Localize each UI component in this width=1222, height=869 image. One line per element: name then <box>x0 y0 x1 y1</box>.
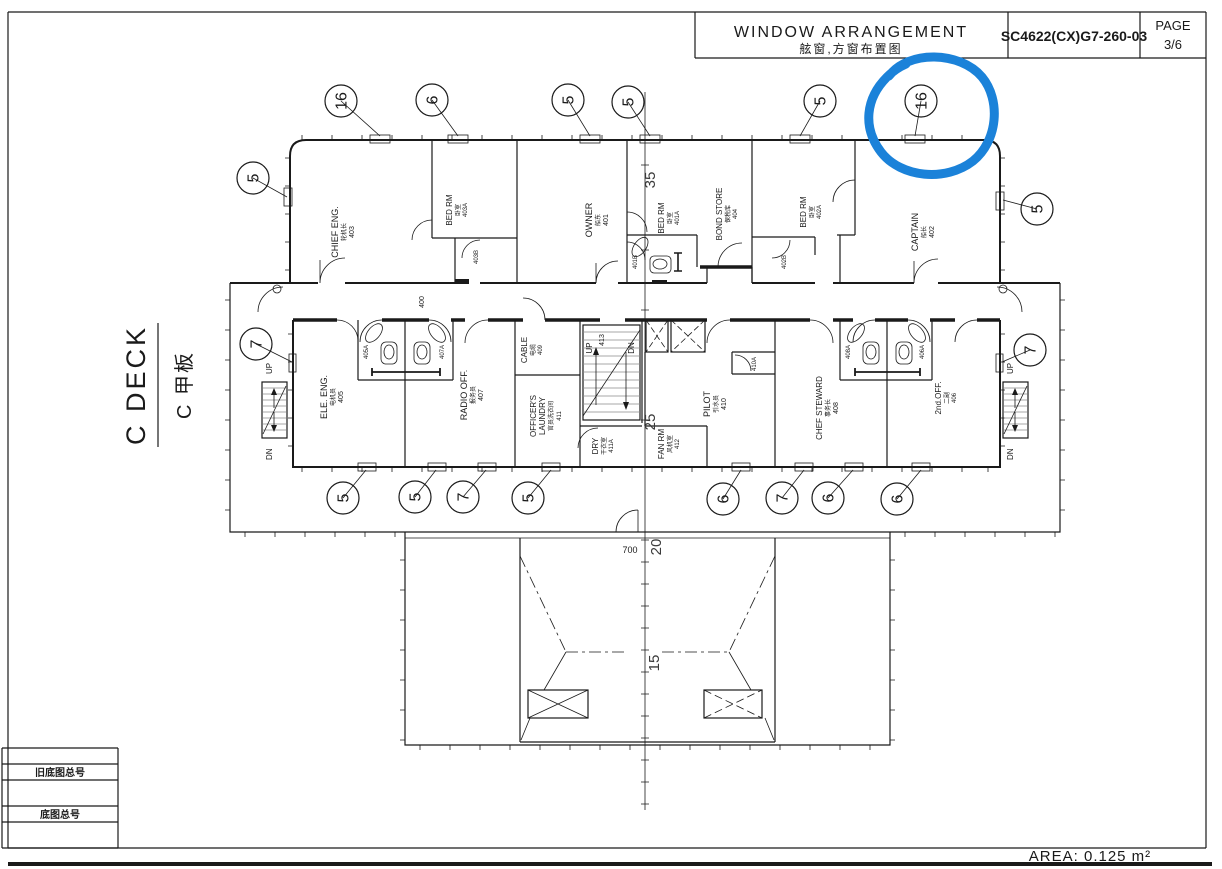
room-number: 406 <box>952 392 958 403</box>
room-number: 410A <box>752 357 758 371</box>
room-label-zh: 卧室 <box>454 204 462 216</box>
drawing-number: SC4622(CX)G7-260-03 <box>1001 28 1148 44</box>
title-block: WINDOW ARRANGEMENT 舷窗,方窗布置图 SC4622(CX)G7… <box>695 12 1206 58</box>
room-number: 402B <box>782 255 788 269</box>
dn-label: DN <box>1006 448 1015 460</box>
room-bond-store: BOND STORE 保税库 404 <box>715 188 739 241</box>
arrow-up-head <box>1012 388 1018 395</box>
balloon-number: 5 <box>521 493 538 502</box>
room-ele-eng: ELE. ENG. 电机员 405 <box>319 375 345 419</box>
rail-icon <box>372 368 440 376</box>
page-number: 3/6 <box>1164 37 1182 52</box>
balloon-number: 5 <box>408 492 425 501</box>
balloon-number: 7 <box>249 339 266 348</box>
stamp-row2-label: 底图总号 <box>40 808 80 821</box>
room-wc-403b: 403B <box>474 250 480 264</box>
room-wc-410a: 410A <box>752 357 758 371</box>
wing-door-arcs <box>258 287 1022 312</box>
room-label-zh: 官员洗衣间 <box>547 401 555 431</box>
room-bed-401a: BED RM 卧室 401A <box>657 202 681 233</box>
wing-stair-right: UP DN <box>1003 363 1028 460</box>
balloon-6-bottom-c: 6 <box>881 470 921 515</box>
deck-title-zh: C 甲板 <box>173 351 196 419</box>
area-note: AREA: 0.125 m² <box>1029 848 1151 865</box>
up-label: UP <box>265 363 274 374</box>
upper-partitions <box>432 140 855 283</box>
room-label: BED RM <box>657 202 666 233</box>
balloon-number: 7 <box>775 493 792 502</box>
room-label-zh: 船长 <box>920 226 928 238</box>
rail-icon <box>674 253 682 271</box>
stair-no-label: 413 <box>599 334 606 346</box>
room-label-zh: 风机室 <box>666 435 674 453</box>
balloon-16-top-right-highlighted: 16 <box>905 85 937 136</box>
balloon-5-bottom-c: 5 <box>512 470 551 514</box>
balloon-16-top-left: 16 <box>325 85 380 136</box>
balloon-number: 16 <box>334 92 351 110</box>
room-number: 411 <box>557 411 563 421</box>
door-knob-right <box>999 285 1007 293</box>
room-number: 401B <box>633 255 639 269</box>
room-label: CHIEF ENG. <box>330 206 340 258</box>
stamp-table: 旧底图总号 底图总号 <box>2 748 118 848</box>
balloon-6-bottom-a: 6 <box>707 470 741 515</box>
balloon-number: 5 <box>561 95 578 104</box>
room-captain: CAPTAIN 船长 402 <box>910 213 936 251</box>
room-wc-401b: 401B <box>633 255 639 269</box>
balloon-number: 7 <box>1023 345 1040 354</box>
dn-label: DN <box>627 342 636 354</box>
sink-icon <box>425 321 448 346</box>
room-number: 401 <box>603 214 610 226</box>
room-number: 410 <box>721 398 728 410</box>
balloon-7-bottom-b: 7 <box>766 470 804 514</box>
room-wc-402b: 402B <box>782 255 788 269</box>
sink-icon <box>362 321 385 346</box>
trunk-x <box>646 320 668 352</box>
balloon-number: 5 <box>1030 204 1047 213</box>
room-label: OFFICER'S <box>529 395 538 437</box>
lower-wall-ticks <box>288 334 1005 472</box>
stair-dn-label: DN <box>627 342 636 354</box>
room-number: 412 <box>675 438 681 449</box>
room-label: BOND STORE <box>715 188 724 241</box>
room-number: 404 <box>733 208 739 219</box>
vent-box-left-x <box>528 690 588 718</box>
room-dry: DRY 干衣室 411A <box>591 437 615 455</box>
door-knob-left <box>273 285 281 293</box>
vent-box-right-x <box>704 690 762 718</box>
room-number: 405 <box>338 391 345 403</box>
room-label-zh: 电缆 <box>529 344 537 356</box>
room-label: CHEF STEWARD <box>815 376 824 440</box>
room-label: DRY <box>591 437 600 454</box>
drawing-title-en: WINDOW ARRANGEMENT <box>734 24 968 41</box>
room-label: CABLE <box>520 337 529 363</box>
room-second-off: 2nd.OFF. 二副 406 <box>934 382 958 415</box>
trunk-casings <box>646 320 705 352</box>
room-label-zh: 保税库 <box>724 205 732 223</box>
room-number: 407A <box>440 345 446 359</box>
room-bed-402a: BED RM 卧室 402A <box>799 196 823 227</box>
room-label-zh: 卧室 <box>666 212 674 224</box>
balloon-number: 6 <box>890 494 907 503</box>
room-officers-laundry: OFFICER'S LAUNDRY 官员洗衣间 411 <box>529 395 563 437</box>
balloon-5-bottom-b: 5 <box>399 470 436 513</box>
room-radio-off: RADIO OFF. 报务员 407 <box>459 370 485 421</box>
page-label: PAGE <box>1155 18 1190 33</box>
corridor-number-label: 400 <box>419 296 426 308</box>
balloon-number: 6 <box>821 493 838 502</box>
room-cable: CABLE 电缆 409 <box>520 337 544 363</box>
room-wc-406a: 406A <box>920 345 926 359</box>
room-label-zh: 轮机长 <box>340 223 348 241</box>
balloon-5-bottom-a: 5 <box>327 470 366 514</box>
room-label: FAN RM <box>657 429 666 460</box>
room-owner: OWNER 船东 401 <box>584 202 610 237</box>
upper-door-arcs <box>320 180 938 283</box>
room-number: 413 <box>599 334 606 346</box>
room-number: 407 <box>478 389 485 401</box>
lower-cabin-block: ELE. ENG. 电机员 405 405A 407A RADIO OFF. 报… <box>288 298 1005 472</box>
room-label: BED RM <box>799 196 808 227</box>
sink-icon <box>905 321 928 346</box>
toilet-bowl-icon <box>384 345 394 359</box>
up-label: UP <box>585 342 594 353</box>
up-label: UP <box>1006 363 1015 374</box>
toilet-bowl-icon <box>866 345 876 359</box>
highlight-annotation-circle <box>869 57 995 174</box>
dn-label: DN <box>265 448 274 460</box>
balloon-number: 7 <box>456 492 473 501</box>
room-label: RADIO OFF. <box>459 370 469 421</box>
hull-outline <box>405 532 890 745</box>
dim-label: 25 <box>642 414 659 431</box>
room-label: BED RM <box>445 194 454 225</box>
stair-arrow-dn-head <box>623 402 629 410</box>
balloon-number: 5 <box>336 493 353 502</box>
casing-door-arc <box>616 510 638 532</box>
balloon-5-left: 5 <box>237 162 287 197</box>
balloon-5-right: 5 <box>1003 193 1053 225</box>
bond-store-recess-sides <box>707 267 752 283</box>
room-number: 405A <box>364 345 370 359</box>
room-number: 401A <box>675 211 681 225</box>
toilet-bowl-icon <box>653 259 667 269</box>
deck-title: C DECK C 甲板 <box>121 323 196 447</box>
arrow-dn-head <box>1012 425 1018 432</box>
room-label-zh: 二副 <box>943 392 951 404</box>
balloon-6-bottom-b: 6 <box>812 470 853 514</box>
balloon-number: 16 <box>914 92 931 110</box>
balloon-6-top: 6 <box>416 84 458 136</box>
balloon-number: 5 <box>813 96 830 105</box>
room-number: 411A <box>609 439 615 453</box>
room-number: 408A <box>846 345 852 359</box>
funnel-dashdot <box>520 556 775 652</box>
room-fan-rm: FAN RM 风机室 412 <box>657 429 681 460</box>
balloon-number: 6 <box>425 95 442 104</box>
room-bed-403a: BED RM 卧室 403A <box>445 194 469 225</box>
arrow-up-head <box>271 388 277 395</box>
balloon-5-top-b: 5 <box>612 86 650 136</box>
room-wc-408a: 408A <box>846 345 852 359</box>
room-wc-405a: 405A <box>364 345 370 359</box>
sink-icon <box>844 321 867 346</box>
stamp-table-lines <box>2 748 118 848</box>
arrow-dn-head <box>271 425 277 432</box>
dim-700: 700 <box>622 545 637 555</box>
room-label-zh: 电机员 <box>329 388 337 406</box>
room-label: ELE. ENG. <box>319 375 329 419</box>
dim-35: 35 <box>642 172 659 189</box>
stamp-row1-label: 旧底图总号 <box>35 766 85 779</box>
room-label: PILOT <box>702 390 712 417</box>
room-chief-eng: CHIEF ENG. 轮机长 403 <box>330 206 356 258</box>
room-number: 402 <box>929 226 936 238</box>
room-label-zh: 报务员 <box>469 386 477 404</box>
room-number: 402A <box>817 205 823 219</box>
room-number: 408 <box>833 402 840 414</box>
dim-label: 20 <box>648 539 665 556</box>
drawing-sheet: WINDOW ARRANGEMENT 舷窗,方窗布置图 SC4622(CX)G7… <box>0 0 1222 869</box>
wing-stair-left: UP DN <box>262 363 287 460</box>
balloon-5-top-a: 5 <box>552 84 590 136</box>
dim-15: 15 <box>646 655 663 672</box>
room-label-zh: 干衣室 <box>600 437 608 455</box>
toilet-bowl-icon <box>899 345 909 359</box>
room-number: 409 <box>538 344 544 355</box>
room-label: 2nd.OFF. <box>934 382 943 415</box>
dim-25: 25 <box>642 414 659 431</box>
room-label-zh: 卧室 <box>808 206 816 218</box>
balloon-number: 5 <box>621 97 638 106</box>
casing-sides <box>520 538 775 742</box>
balloon-number: 6 <box>716 494 733 503</box>
deck-plan-svg: WINDOW ARRANGEMENT 舷窗,方窗布置图 SC4622(CX)G7… <box>0 0 1222 869</box>
room-number: 406A <box>920 345 926 359</box>
toilet-bowl-icon <box>417 345 427 359</box>
room-label: OWNER <box>584 202 594 237</box>
room-number: 403 <box>349 226 356 238</box>
room-label: CAPTAIN <box>910 213 920 251</box>
balloon-7-bottom-a: 7 <box>447 470 486 513</box>
deck-title-en: C DECK <box>121 325 151 445</box>
trunk-x <box>671 320 705 352</box>
room-pilot: PILOT 引水员 410 <box>702 390 728 417</box>
dim-label: 35 <box>642 172 659 189</box>
stair-413 <box>583 325 640 420</box>
room-label-zh: 事务长 <box>824 399 832 417</box>
room-label: LAUNDRY <box>538 396 547 435</box>
room-label-zh: 引水员 <box>712 395 720 413</box>
dim-label: 15 <box>646 655 663 672</box>
corridor-number: 400 <box>419 296 426 308</box>
balloon-number: 5 <box>246 173 263 182</box>
balloon-7-right: 7 <box>1002 334 1046 366</box>
dim-20: 20 <box>648 539 665 556</box>
room-chief-steward: CHEF STEWARD 事务长 408 <box>815 376 840 440</box>
room-wc-407a: 407A <box>440 345 446 359</box>
stair-up-label: UP <box>585 342 594 353</box>
balloon-7-left: 7 <box>240 328 292 362</box>
room-label-zh: 船东 <box>594 214 602 226</box>
room-number: 403A <box>463 203 469 217</box>
drawing-title-zh: 舷窗,方窗布置图 <box>799 41 902 56</box>
balloon-5-top-c: 5 <box>800 85 836 136</box>
room-number: 403B <box>474 250 480 264</box>
